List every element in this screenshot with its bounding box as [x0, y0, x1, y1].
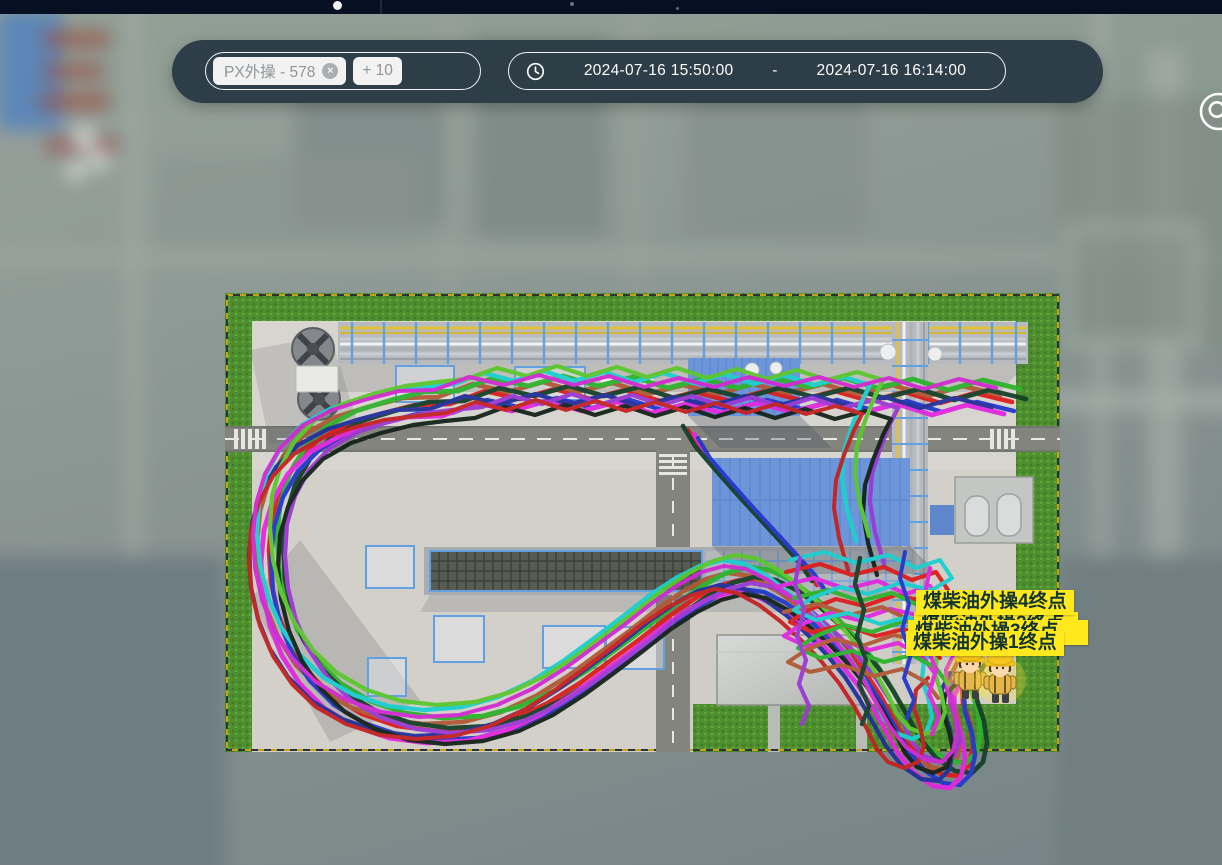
time-range-end[interactable]: 2024-07-16 16:14:00 [778, 62, 1005, 80]
grass-top [225, 293, 1060, 321]
chip-remove-icon[interactable]: × [322, 63, 338, 79]
bright-dot [333, 1, 342, 10]
plant-map[interactable] [0, 0, 1222, 865]
more-tags-chip[interactable]: + 10 [353, 57, 402, 85]
time-range-picker[interactable]: 2024-07-16 15:50:00 - 2024-07-16 16:14:0… [508, 52, 1006, 90]
toolbar: PX外操 - 578 × + 10 2024-07-16 15:50:00 - … [172, 40, 1103, 103]
tag-chip[interactable]: PX外操 - 578 × [213, 57, 346, 85]
locate-search-button[interactable] [1198, 91, 1222, 132]
personnel-tags-input[interactable]: PX外操 - 578 × + 10 [205, 52, 481, 90]
time-range-start[interactable]: 2024-07-16 15:50:00 [545, 62, 772, 80]
endpoint-label[interactable]: 煤柴油外操1终点 [906, 631, 1064, 656]
top-navy-bar [0, 0, 1222, 14]
clock-icon [526, 62, 545, 81]
grass-left [225, 293, 252, 752]
endpoint-label[interactable]: 煤柴油外操4终点 [916, 590, 1074, 615]
app-window: 煤柴油外操2终点 煤柴油外操3终点 煤柴油外操4终点 煤柴油外操1终点 PX外操… [0, 0, 1222, 865]
tag-chip-label: PX外操 - 578 [224, 60, 315, 82]
